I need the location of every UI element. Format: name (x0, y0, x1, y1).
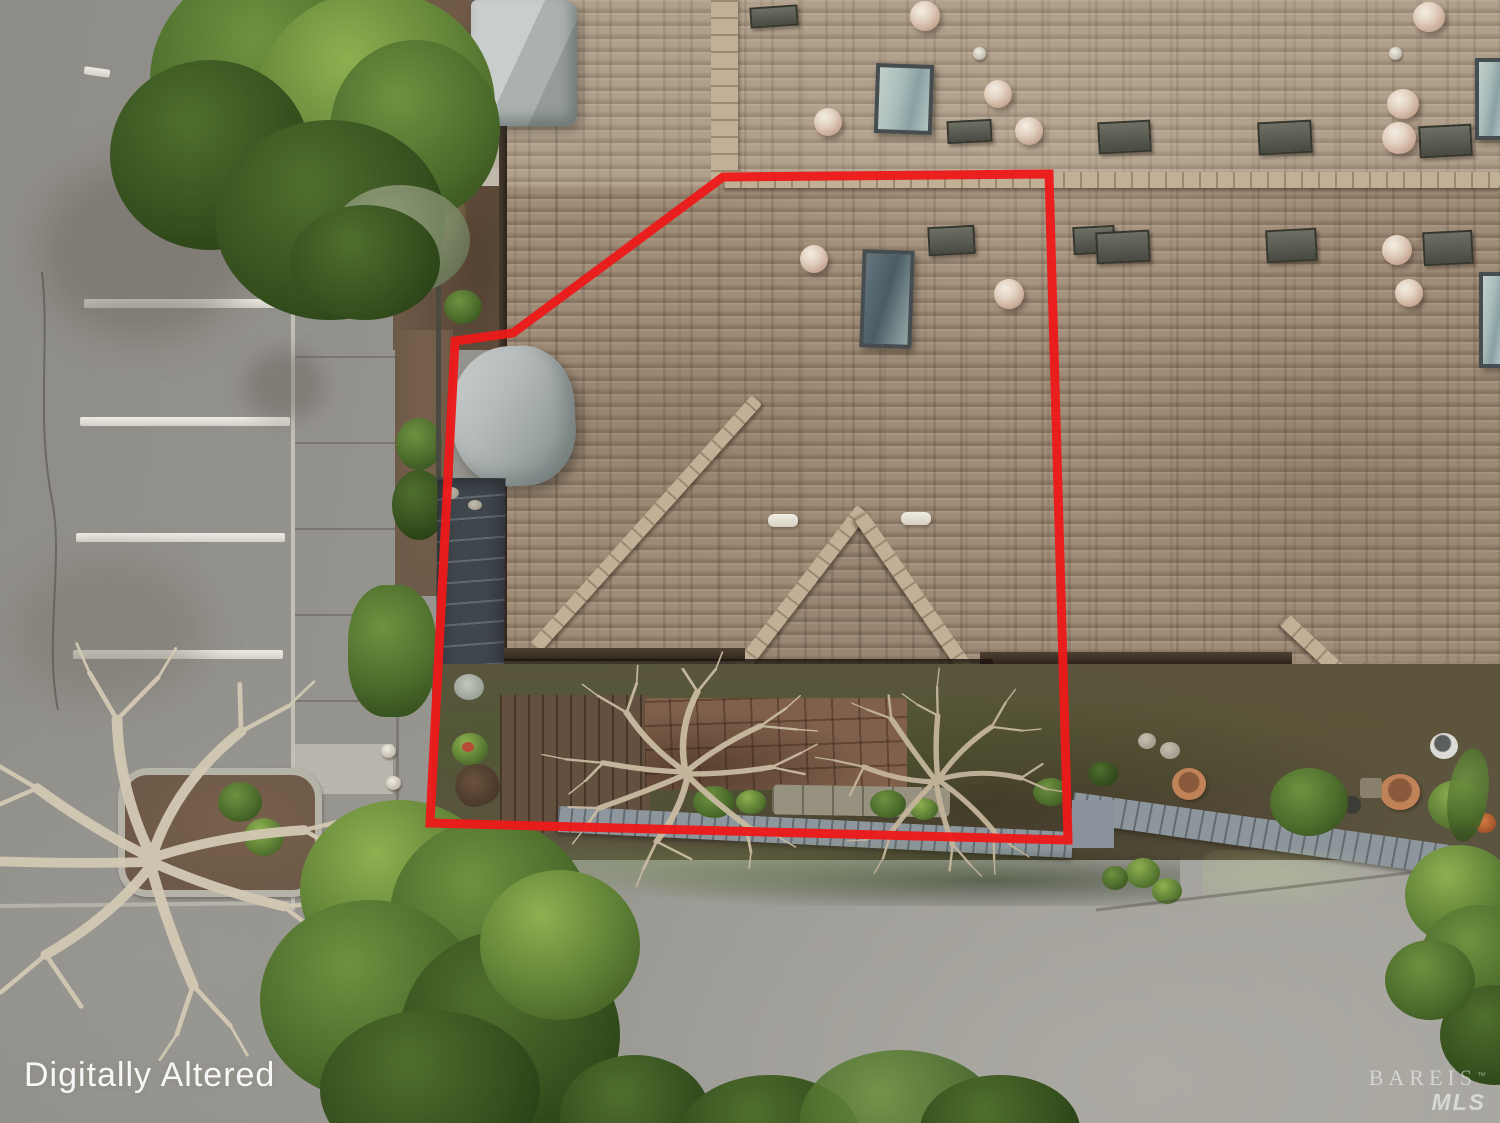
planter-plant (244, 818, 284, 856)
digitally-altered-watermark: Digitally Altered (24, 1056, 275, 1095)
roof-vent-flat (946, 119, 992, 144)
aerial-photo: Digitally Altered BAREIS™ MLS (0, 0, 1500, 1123)
parking-stripe (80, 417, 290, 426)
roof-vent-flat (1265, 228, 1318, 264)
hedge-bush (348, 585, 436, 717)
garden-bush (1270, 768, 1348, 836)
plant (910, 798, 938, 820)
roof-vent-cylinder (814, 108, 842, 136)
planter-plant (218, 782, 262, 822)
roof-vent-cylinder (910, 1, 940, 31)
terracotta-pot (1172, 768, 1206, 800)
curb-line (0, 903, 290, 906)
terracotta-pot-large (1380, 774, 1420, 810)
roof-vent-cylinder (1015, 117, 1043, 145)
roof-vent-cylinder (1413, 2, 1445, 32)
plant (1088, 762, 1118, 786)
plant (1033, 778, 1069, 806)
roof-vent-cylinder (1387, 89, 1419, 119)
roof-vent-cylinder (1395, 279, 1423, 307)
roof-vent-flat (749, 4, 798, 28)
roof-vent-flat (1097, 120, 1152, 155)
skylight (859, 249, 914, 349)
flower-red (462, 742, 474, 752)
shrub (444, 290, 482, 324)
roof-vent-flat (927, 225, 975, 256)
roof-vent-cylinder (994, 279, 1024, 309)
pipe-bollard (381, 744, 396, 758)
plant (870, 790, 906, 818)
agave-plant (1102, 866, 1128, 890)
tree-canopy-bottomleft (480, 870, 640, 1020)
roof-vent-flat (1095, 230, 1151, 265)
roof-vent-cylinder (984, 80, 1012, 108)
stone (1160, 742, 1180, 759)
mls-logo-watermark: BAREIS™ MLS (1369, 1066, 1486, 1114)
agave-plant (1152, 878, 1182, 904)
roof-vent-flat (1257, 120, 1313, 156)
white-pipe-pot (1430, 733, 1458, 759)
roof-pipe (1389, 47, 1402, 60)
roof-pipe-white (901, 512, 931, 525)
mls-logo-serif-text: BAREIS (1369, 1065, 1477, 1090)
tile-patio (645, 698, 907, 790)
roof-vent-flat (1422, 230, 1474, 267)
rock (468, 500, 482, 510)
asphalt-smudge (15, 560, 205, 700)
parking-stripe (76, 533, 285, 542)
tree-right-edge (1385, 940, 1475, 1020)
roof-vent-cylinder (1382, 122, 1416, 154)
stone (1138, 733, 1156, 749)
roof-pipe-white (768, 514, 798, 527)
tree-canopy-topleft (290, 205, 440, 320)
roof-ridge-main (723, 172, 1500, 188)
pipe-bollard (386, 776, 401, 790)
plant (693, 786, 735, 818)
mls-logo-bold-text: MLS (1369, 1090, 1486, 1114)
skylight (874, 63, 934, 135)
chimney-cap-mid (447, 343, 578, 489)
roof-vent-cylinder (800, 245, 828, 273)
square-planter (1360, 778, 1382, 798)
skylight-edge (1475, 58, 1500, 140)
skylight-edge (1479, 272, 1500, 368)
roof-vent-cylinder (1382, 235, 1412, 265)
mls-logo-trademark: ™ (1477, 1071, 1486, 1081)
ivy-strip (550, 842, 1180, 906)
plant (736, 790, 766, 814)
rock (443, 487, 459, 499)
asphalt-smudge (245, 350, 325, 420)
deck-pot (454, 674, 484, 700)
roof-pipe (973, 47, 986, 60)
roof-ridge-vertical (711, 0, 738, 182)
roof-vent-flat (1418, 124, 1473, 159)
planter-island (118, 768, 322, 897)
boardwalk-elbow (1072, 800, 1114, 848)
hedge (1203, 850, 1418, 922)
parking-stripe-fragment (84, 66, 111, 78)
